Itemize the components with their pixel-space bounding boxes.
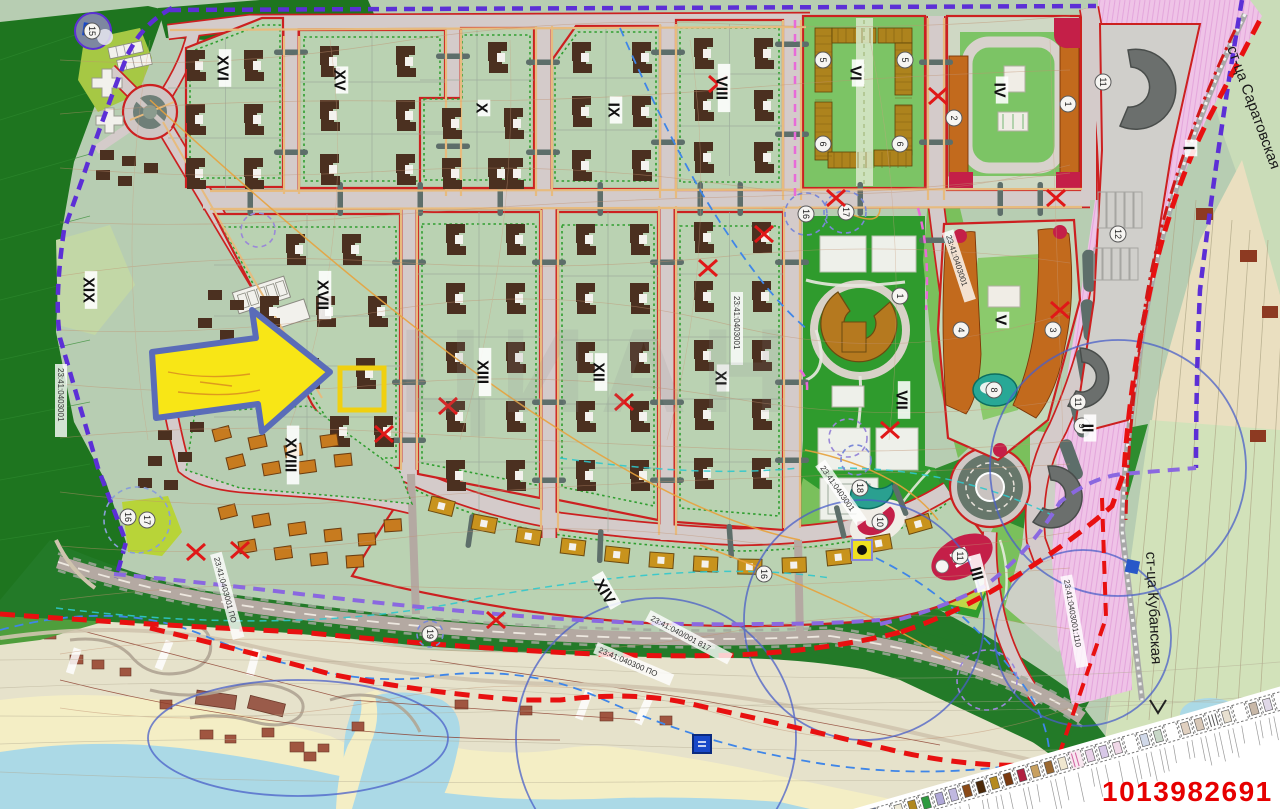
- svg-text:19: 19: [425, 629, 435, 639]
- svg-text:XVII: XVII: [314, 280, 331, 310]
- svg-text:ЦИАН: ЦИАН: [398, 304, 801, 438]
- svg-text:1: 1: [895, 293, 905, 298]
- svg-text:16: 16: [759, 569, 769, 579]
- svg-text:17: 17: [841, 207, 851, 217]
- svg-text:18: 18: [855, 483, 865, 493]
- svg-text:4: 4: [956, 327, 966, 332]
- svg-text:I: I: [1180, 146, 1197, 150]
- svg-text:11: 11: [955, 551, 965, 560]
- svg-text:12: 12: [1113, 229, 1123, 239]
- svg-text:VI: VI: [847, 65, 864, 80]
- svg-text:2: 2: [949, 115, 959, 120]
- svg-text:XVIII: XVIII: [282, 438, 299, 473]
- svg-text:X: X: [473, 103, 490, 114]
- svg-text:11: 11: [1073, 397, 1083, 406]
- svg-text:11: 11: [1098, 77, 1108, 86]
- svg-text:8: 8: [989, 387, 999, 392]
- svg-text:5: 5: [900, 57, 910, 62]
- svg-text:5: 5: [818, 57, 828, 62]
- svg-text:23:41:0403001: 23:41:0403001: [56, 368, 65, 422]
- svg-text:XVI: XVI: [214, 55, 231, 81]
- svg-text:IV: IV: [991, 82, 1008, 97]
- svg-text:6: 6: [895, 141, 905, 146]
- svg-text:3: 3: [1048, 327, 1058, 332]
- svg-text:1: 1: [1063, 101, 1073, 106]
- svg-text:16: 16: [123, 512, 133, 522]
- svg-text:IX: IX: [605, 102, 622, 117]
- svg-text:XV: XV: [331, 69, 348, 91]
- svg-text:17: 17: [142, 515, 152, 525]
- svg-text:6: 6: [818, 141, 828, 146]
- svg-text:XIX: XIX: [80, 277, 97, 303]
- svg-text:10: 10: [875, 517, 885, 527]
- svg-text:II: II: [1079, 424, 1096, 433]
- svg-text:VII: VII: [893, 390, 910, 410]
- svg-text:16: 16: [801, 209, 811, 219]
- svg-text:15: 15: [87, 26, 97, 36]
- svg-text:V: V: [992, 315, 1009, 326]
- svg-text:1013982691: 1013982691: [1102, 776, 1273, 807]
- svg-text:VIII: VIII: [713, 76, 730, 100]
